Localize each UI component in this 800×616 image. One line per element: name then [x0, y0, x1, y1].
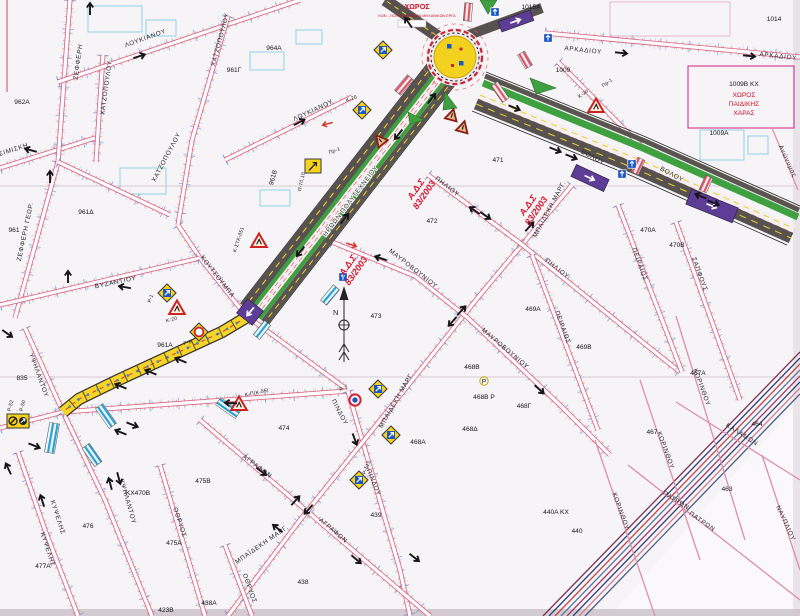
playground-line: ΧΑΡΑΣ: [733, 110, 754, 117]
playground-line: ΠΑΙΔΙΚΗΣ: [729, 101, 759, 108]
block-label: 474: [278, 425, 289, 432]
block-label: 468Α: [410, 439, 426, 446]
block-label: 961Δ: [78, 209, 94, 216]
scanned-traffic-plan-map: 962Α 961 961Δ 961Γ 961Β 964Α 961Α 835 10…: [0, 0, 800, 616]
block-label: 440Α ΚΧ: [543, 509, 569, 516]
block-label: 469Α: [525, 306, 541, 313]
block-label: 961Α: [157, 342, 173, 349]
sign-blue-info-icon: [628, 160, 636, 168]
block-label: 438Α: [201, 600, 217, 607]
block-label: 439: [370, 512, 381, 519]
block-label: 468Γ: [517, 403, 532, 410]
block-label: 468Β: [464, 364, 480, 371]
block-label: 961Γ: [227, 67, 242, 74]
block-label: 470Α: [640, 227, 656, 234]
block-label: 1015Α: [521, 4, 541, 11]
block-label: 476: [82, 523, 93, 530]
block-label: 464: [751, 421, 762, 428]
block-label: 1009Α: [709, 130, 729, 137]
block-label: 472: [426, 218, 437, 225]
sign-no-stopping-icon: [349, 394, 360, 405]
block-label: 423Β: [158, 607, 174, 614]
roundabout-center: [434, 36, 476, 78]
block-label: 470Β: [669, 242, 685, 249]
compass-north-label: N: [333, 308, 338, 317]
block-label: 468Β Ρ: [473, 394, 495, 401]
title-main: ΧΩΡΟΣ: [404, 2, 430, 11]
map-canvas: 962Α 961 961Δ 961Γ 961Β 964Α 961Α 835 10…: [0, 0, 800, 616]
block-label: 473: [370, 313, 381, 320]
sign-blue-info-icon: [618, 170, 626, 178]
sign-double-panel-icon: [7, 414, 29, 428]
playground-line: ΧΩΡΟΣ: [733, 92, 756, 99]
block-label: 962Α: [14, 99, 30, 106]
block-label: 440: [571, 528, 582, 535]
parking-p: Ρ: [482, 379, 487, 386]
block-label: 438: [297, 579, 308, 586]
block-label: 475Β: [195, 478, 211, 485]
legend-box: [398, 20, 426, 27]
block-label: 964Α: [266, 45, 282, 52]
block-label: 1009: [556, 67, 571, 74]
title-sub: ΚΩΝ - ΠΟΛΕΟΔΟΜΙΚΩΝ ΜΗΧΑΝΙΚΩΝ ΕΡΓΑ: [378, 14, 456, 18]
block-label: 468Δ: [462, 426, 478, 433]
sign-blue-info-icon: [544, 34, 552, 42]
block-label: 835: [16, 375, 27, 382]
block-label: 1014: [767, 16, 782, 23]
block-label: 469Β: [576, 344, 592, 351]
block-label: 471: [492, 157, 503, 164]
sign-blue-info-icon: [491, 8, 499, 16]
block-label: 1009Β ΚΧ: [729, 81, 759, 88]
block-label: 961: [8, 227, 19, 234]
scan-edge: [0, 609, 800, 616]
block-label: 463: [721, 486, 732, 493]
sign-yellow-panel-icon: [305, 159, 321, 173]
block-label: 475Α: [166, 540, 182, 547]
